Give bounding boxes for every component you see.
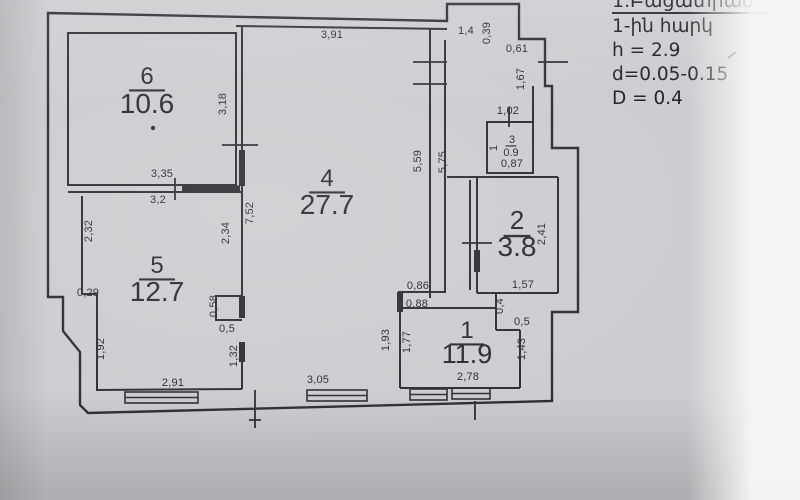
notes-block: 1.Բացատրած 1-ին հարկ h = 2.9 d=0.05-0.15…	[612, 0, 770, 110]
dimension-label: 0,29	[77, 287, 99, 299]
dimension-label: 0,87	[501, 158, 523, 170]
dimension-label: 0,61	[506, 43, 528, 55]
dimension-label: 2,78	[457, 371, 479, 383]
dimension-label: 2,34	[220, 222, 232, 244]
room-area: 10.6	[120, 88, 175, 119]
dimension-label: 5,75	[437, 151, 449, 173]
dimension-label: 1	[488, 145, 500, 151]
room-area: 12.7	[130, 276, 185, 307]
dimension-label: 0,58	[208, 295, 220, 317]
dimension-label: 3,91	[321, 29, 343, 41]
dimension-label: 2,41	[536, 223, 548, 245]
dimension-label: 3,2	[150, 194, 166, 206]
dimension-label: 3,35	[151, 168, 173, 180]
notes-d-line: d=0.05-0.15	[612, 63, 770, 86]
dimension-label: 0,5	[219, 323, 235, 335]
room-number: 5	[150, 252, 163, 279]
dimension-label: 7,52	[244, 202, 256, 224]
room-area: 0.9	[503, 147, 518, 159]
room-number: 4	[320, 165, 333, 192]
dimension-label: 0,86	[407, 280, 429, 292]
dimension-label: 5,59	[412, 150, 424, 172]
dimension-label: 1,77	[401, 331, 413, 353]
dimension-label: 1,67	[515, 68, 527, 90]
dimension-label: 1,57	[512, 279, 534, 291]
dimension-label: 1,92	[95, 338, 107, 360]
notes-height-line: h = 2.9	[612, 39, 770, 62]
dimension-label: 1,32	[228, 345, 240, 367]
dimension-label: 2,32	[83, 220, 95, 242]
notes-D-line: D = 0.4	[612, 87, 770, 110]
room-number: 6	[140, 63, 153, 90]
dimension-label: 3,18	[217, 93, 229, 115]
dimension-label: 1,4	[458, 25, 474, 37]
dimension-label: 0,39	[481, 22, 493, 44]
dimension-label: 3,05	[307, 374, 329, 386]
dimension-label: 1,02	[497, 105, 519, 117]
dimension-label: 0,4	[494, 298, 506, 314]
room-number: 3	[509, 134, 515, 146]
ink-dot-artifact	[151, 126, 155, 130]
dimension-label: 0,88	[406, 298, 428, 310]
scanned-floor-plan-photo: 3,911,40,390,611,671,0210,873,183,353,27…	[0, 0, 800, 500]
dimension-label: 2,91	[162, 377, 184, 389]
room-area: 27.7	[300, 189, 355, 220]
dimension-label: 1,93	[380, 329, 392, 351]
notes-floor-line: 1-ին հարկ	[612, 15, 770, 38]
dimension-label: 1,43	[516, 338, 528, 360]
dimension-label: 0,5	[514, 316, 530, 328]
notes-title: 1.Բացատրած	[612, 0, 770, 14]
